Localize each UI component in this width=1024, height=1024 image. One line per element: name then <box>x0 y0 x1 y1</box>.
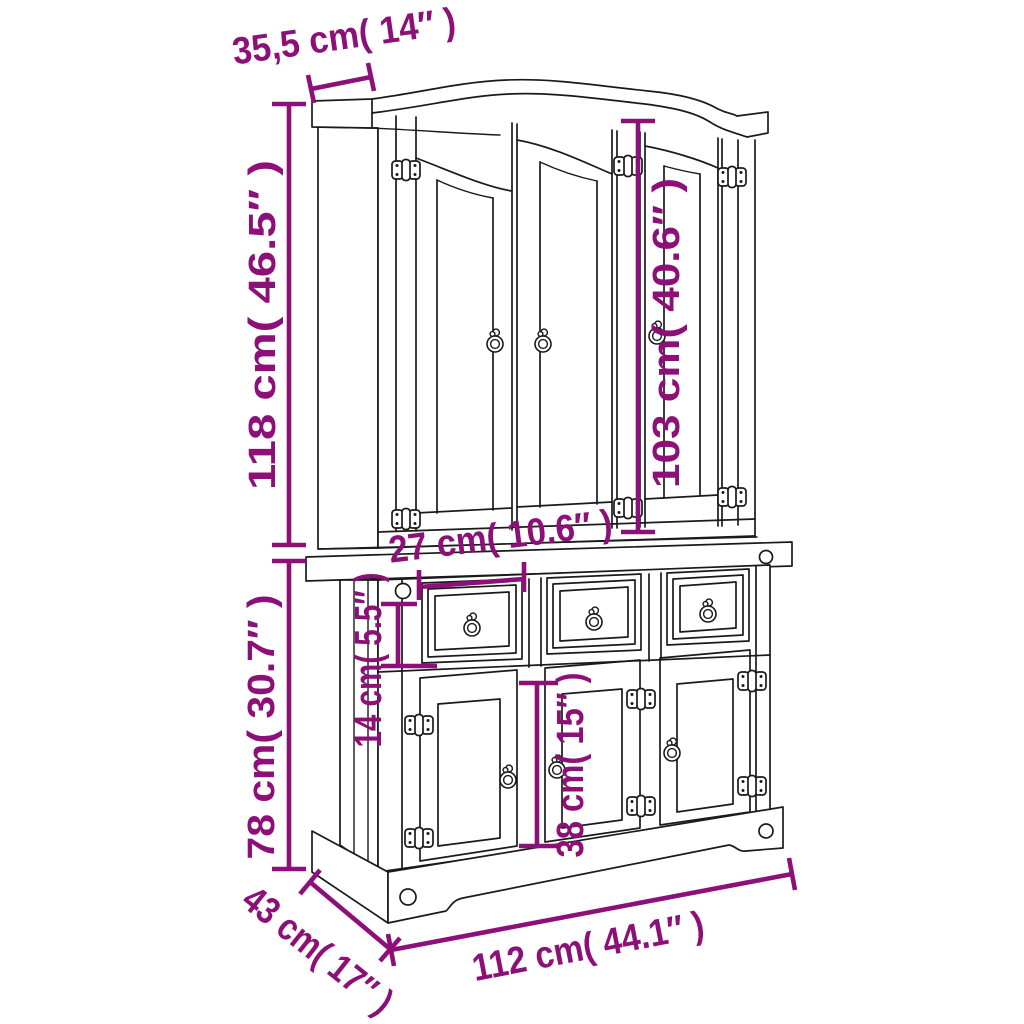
hinge-icon <box>718 167 746 188</box>
hinge-icon <box>738 671 766 692</box>
dimension-base-height: 78 cm( 30.7″ ) <box>241 561 306 869</box>
cabinet-dimension-drawing: 35,5 cm( 14″ ) 118 cm( 46.5″ ) 103 cm( 4… <box>0 0 1024 1024</box>
hinge-icon <box>718 487 746 508</box>
dimension-diagram: 35,5 cm( 14″ ) 118 cm( 46.5″ ) 103 cm( 4… <box>0 0 1024 1024</box>
dimension-hutch-door-height-label: 103 cm( 40.6″ ) <box>646 178 688 488</box>
peg-plinth-left <box>400 889 416 905</box>
hinge-icon <box>627 796 655 817</box>
dimension-base-height-label: 78 cm( 30.7″ ) <box>241 595 283 860</box>
dimension-hutch-height: 118 cm( 46.5″ ) <box>242 104 306 545</box>
dimension-top-depth: 35,5 cm( 14″ ) <box>230 1 459 103</box>
hutch-side-panel <box>318 127 378 549</box>
peg-plinth-right <box>759 824 773 838</box>
hutch-front <box>372 106 755 548</box>
peg-counter-right <box>760 551 773 564</box>
dimension-base-door-height-label: 38 cm( 15″ ) <box>550 673 592 858</box>
dimension-top-depth-label: 35,5 cm( 14″ ) <box>230 1 459 74</box>
dimension-hutch-height-label: 118 cm( 46.5″ ) <box>242 160 284 490</box>
dimension-width-label: 112 cm( 44.1″ ) <box>469 904 708 990</box>
hinge-icon <box>405 828 433 849</box>
dimension-drawer-height-label: 14 cm( 5.5″ ) <box>348 573 390 748</box>
cabinet-drawing <box>306 80 792 923</box>
hinge-icon <box>392 160 420 181</box>
hinge-icon <box>405 715 433 736</box>
peg-counter-left <box>396 584 411 599</box>
hinge-icon <box>627 689 655 710</box>
hinge-icon <box>738 776 766 797</box>
